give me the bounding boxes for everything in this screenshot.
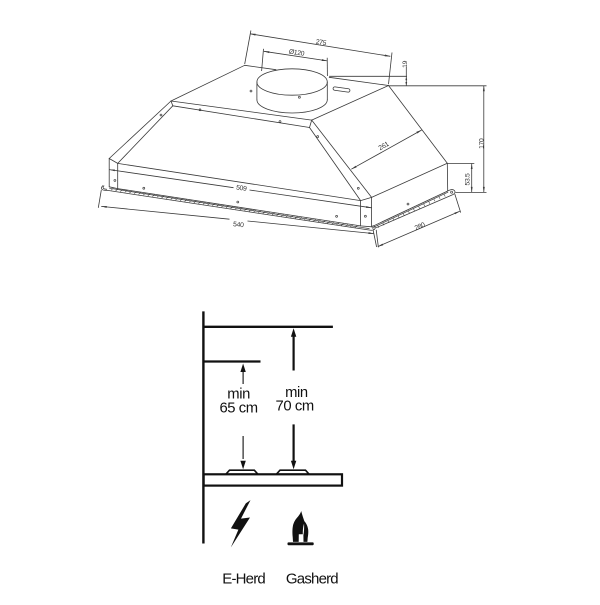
svg-text:540: 540 [233,221,245,229]
svg-text:Gasherd: Gasherd [286,570,338,587]
svg-text:70 cm: 70 cm [276,399,314,415]
svg-text:65 cm: 65 cm [219,400,257,416]
svg-text:275: 275 [315,39,327,48]
svg-text:Ø120: Ø120 [288,49,305,58]
svg-text:261: 261 [378,141,391,152]
svg-text:19: 19 [402,60,409,67]
svg-text:280: 280 [414,221,427,232]
svg-text:E-Herd: E-Herd [222,570,265,587]
svg-text:170: 170 [479,138,486,149]
svg-text:53.5: 53.5 [465,173,472,186]
svg-text:509: 509 [236,184,248,193]
